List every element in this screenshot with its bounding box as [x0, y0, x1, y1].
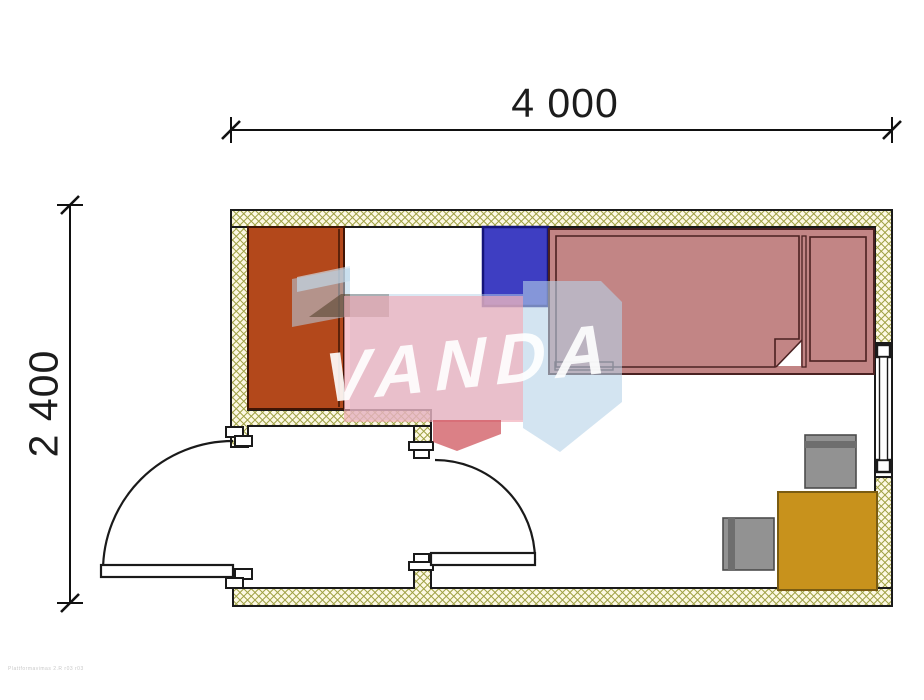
dimension-width-label: 4 000: [460, 80, 670, 127]
footer-fineprint: Plattformavimas 2.R r03 r03: [8, 666, 84, 672]
floor-plan-canvas: VANDA 4 000 2 400 Plattformavimas 2.R r0…: [0, 0, 924, 700]
watermark-red-accent: [433, 420, 501, 451]
dimension-height-label: 2 400: [21, 340, 68, 468]
